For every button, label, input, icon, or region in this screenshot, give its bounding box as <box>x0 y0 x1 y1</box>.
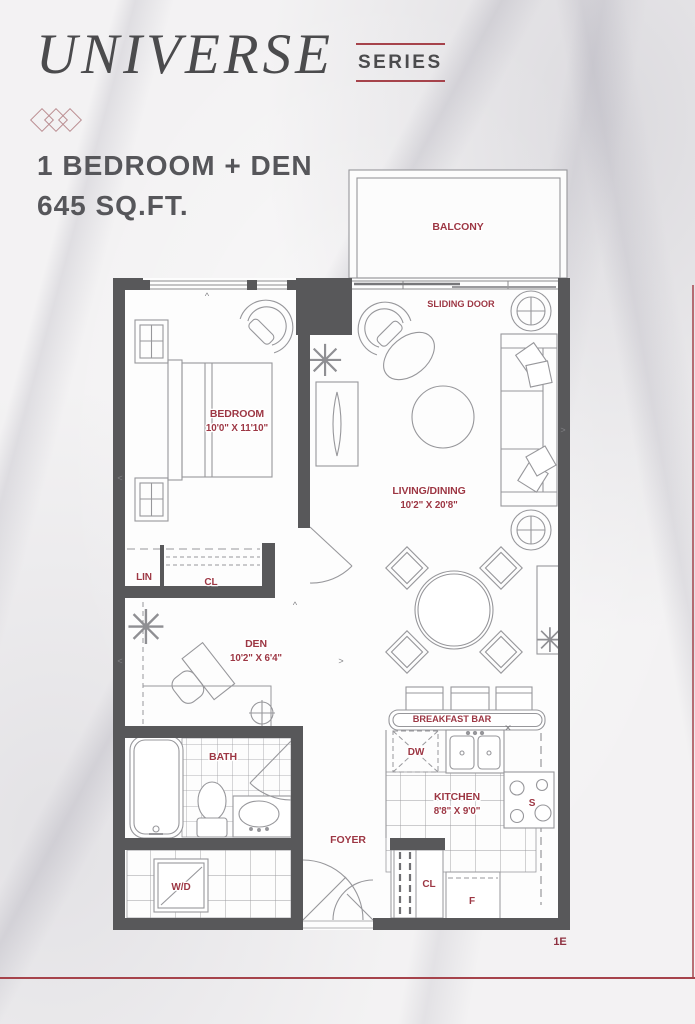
sink <box>446 730 504 773</box>
bedroom-dims: 10'0" X 11'10" <box>206 423 268 434</box>
bath-label: BATH <box>209 751 237 763</box>
floor-plan: ✳ ✳ <box>0 0 695 1024</box>
nightstand <box>135 320 168 363</box>
svg-text:<: < <box>117 656 122 666</box>
bedroom-label: BEDROOM <box>210 408 264 420</box>
linen-label: LIN <box>136 572 152 583</box>
unit-code: 1E <box>553 936 566 948</box>
balcony-label: BALCONY <box>432 221 483 233</box>
vanity-sink <box>233 796 291 837</box>
bathtub <box>130 736 183 838</box>
x-mark: ✕ <box>504 723 512 733</box>
brochure-page: UNIVERSE SERIES 1 BEDROOM + DEN 645 SQ.F… <box>0 0 695 1024</box>
foyer-label: FOYER <box>330 834 366 846</box>
svg-text:>: > <box>560 425 565 435</box>
nightstand <box>135 478 168 521</box>
plant-icon: ✳ <box>307 336 344 387</box>
page-edge-rule <box>692 285 694 978</box>
living-dims: 10'2" X 20'8" <box>400 500 457 511</box>
kitchen-dims: 8'8" X 9'0" <box>434 806 481 817</box>
toilet <box>197 782 227 837</box>
plant-icon: ✳ <box>126 600 166 656</box>
side-table <box>511 510 551 550</box>
breakfast-bar-label: BREAKFAST BAR <box>413 714 492 724</box>
dishwasher-label: DW <box>408 747 425 758</box>
living-label: LIVING/DINING <box>392 485 465 497</box>
sliding-door-label: SLIDING DOOR <box>427 299 495 309</box>
wd-tiles <box>127 850 291 918</box>
fridge-label: F <box>469 896 475 907</box>
foyer-closet-label: CL <box>422 879 435 890</box>
den-dims: 10'2" X 6'4" <box>230 653 282 664</box>
svg-text:<: < <box>117 473 122 483</box>
svg-text:>: > <box>338 656 343 666</box>
bedroom-window <box>140 280 296 290</box>
washer-dryer-label: W/D <box>171 882 190 893</box>
footer-rule <box>0 977 695 979</box>
closet-label: CL <box>204 577 217 588</box>
stove-label: S <box>529 798 536 809</box>
kitchen-label: KITCHEN <box>434 791 480 803</box>
side-table <box>511 291 551 331</box>
den-label: DEN <box>245 638 267 650</box>
